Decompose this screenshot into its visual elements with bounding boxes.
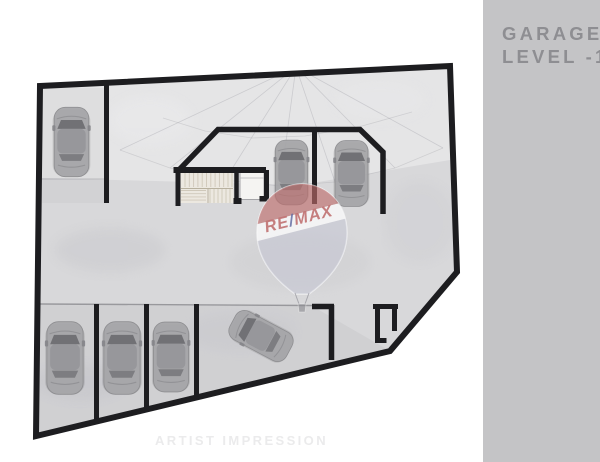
garage-title-line2: LEVEL -1 <box>502 45 600 68</box>
title-sidebar: GARAGE LEVEL -1 <box>483 0 600 462</box>
stairwell <box>181 173 234 203</box>
car <box>152 322 191 392</box>
car <box>102 322 142 395</box>
car <box>45 322 85 395</box>
car <box>52 107 90 176</box>
artist-impression-caption: ARTIST IMPRESSION <box>0 433 483 448</box>
floor-plan-svg: RE/MAX <box>0 0 483 462</box>
screenshot: RE/MAX GARAGE LEVEL -1 ARTIST IMPRESSION <box>0 0 600 462</box>
elevator <box>240 173 264 200</box>
car <box>333 141 370 207</box>
garage-title-line1: GARAGE <box>502 22 600 45</box>
